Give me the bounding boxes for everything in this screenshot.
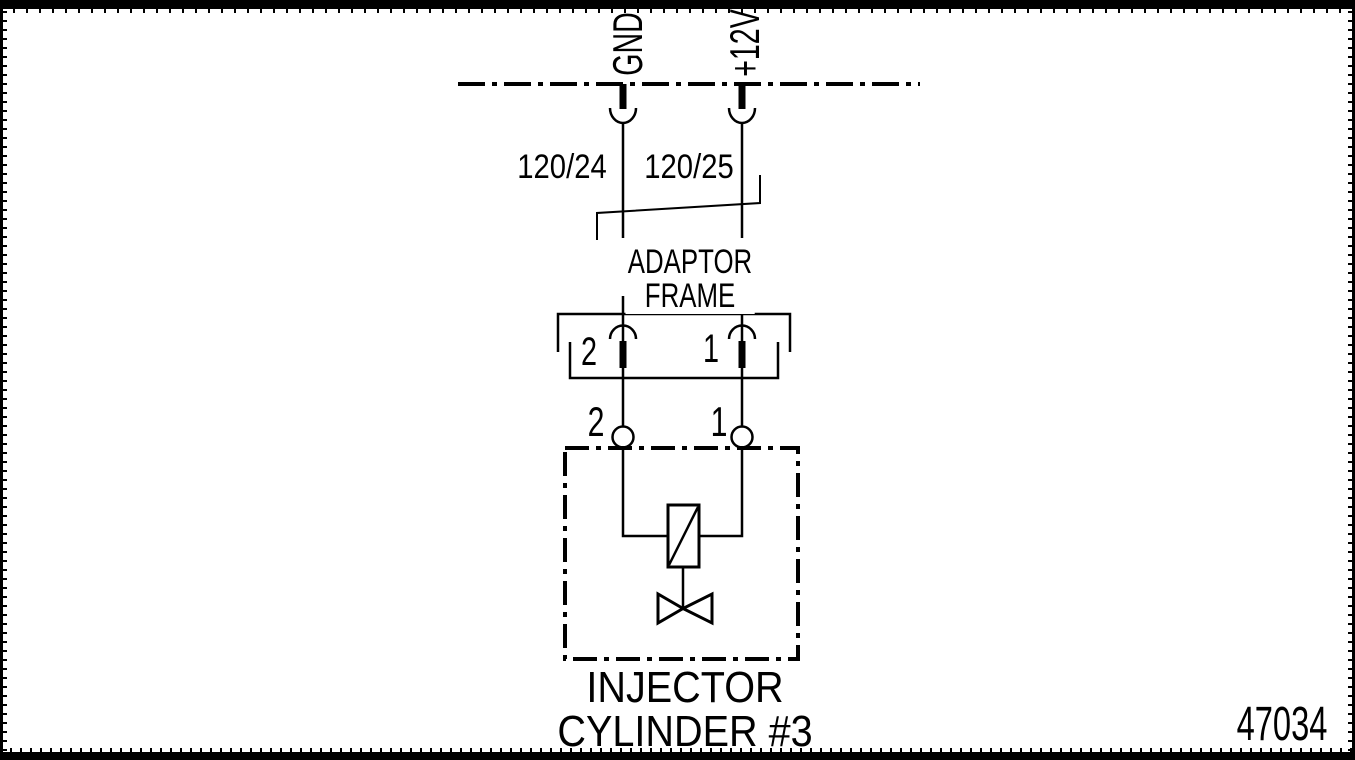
wire-label-120-24-text: 120/24 bbox=[515, 149, 610, 185]
page-border-top bbox=[0, 0, 1355, 9]
frame-pin-2-icon bbox=[620, 341, 627, 368]
adaptor-frame-caption-line2: FRAME bbox=[628, 279, 752, 313]
wiring-diagram-page: GND +12V 120/24 120/25 ADAPTOR FRAME 2 1… bbox=[0, 0, 1355, 760]
frame-pin-1-text: 1 bbox=[701, 328, 721, 370]
plus12v-label-text: +12V bbox=[723, 7, 767, 79]
wire-label-120-25-text: 120/25 bbox=[642, 149, 737, 185]
bus-pin-12v-icon bbox=[739, 84, 746, 109]
bus-pin-gnd-icon bbox=[620, 84, 627, 109]
valve-left-triangle-icon bbox=[658, 594, 683, 623]
gnd-label-text: GND bbox=[606, 10, 650, 78]
injector-terminal-1-text: 1 bbox=[708, 400, 729, 444]
figure-number-text: 47034 bbox=[1235, 700, 1330, 750]
page-border-bottom-ticks bbox=[0, 748, 1355, 752]
schematic-linework bbox=[0, 0, 1355, 760]
socket-arc-12v-icon bbox=[729, 108, 755, 123]
injector-terminal-1-icon bbox=[732, 427, 753, 448]
page-border-left-ticks bbox=[3, 0, 7, 760]
page-border-bottom bbox=[0, 752, 1355, 760]
injector-caption-line1: INJECTOR bbox=[557, 666, 812, 710]
injector-terminal-2-icon bbox=[613, 427, 634, 448]
adaptor-frame-caption-line1: ADAPTOR bbox=[628, 245, 752, 279]
frame-pin-1-icon bbox=[739, 341, 746, 368]
injector-terminal-2-text: 2 bbox=[585, 400, 606, 444]
frame-pin-2-text: 2 bbox=[579, 331, 599, 373]
solenoid-lead-right bbox=[699, 447, 742, 536]
socket-arc-gnd-icon bbox=[610, 108, 636, 123]
page-border-top-ticks bbox=[0, 9, 1355, 13]
solenoid-lead-left bbox=[623, 447, 668, 536]
adaptor-frame-inner-outline bbox=[570, 342, 778, 378]
valve-right-triangle-icon bbox=[683, 594, 712, 623]
page-border-right-ticks bbox=[1348, 0, 1352, 760]
